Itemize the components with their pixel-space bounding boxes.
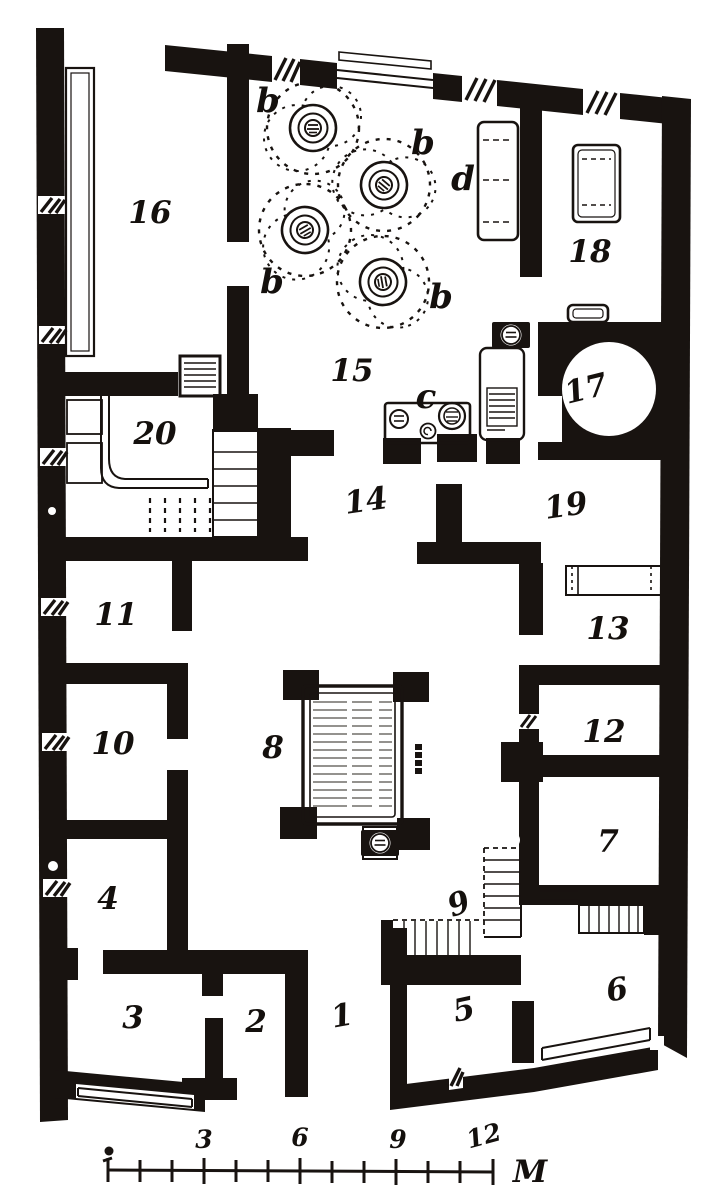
feature-d-structure: [478, 122, 518, 240]
letter-label-c: c: [416, 377, 437, 417]
scale-label-6: 6: [291, 1123, 308, 1152]
room-label-4: 4: [97, 881, 119, 917]
scale-zero-dot: [105, 1147, 114, 1156]
floor-plan-drawing: 1 2 3 4 5 6 7 8 9 10 11 12 13 14 15 16 1…: [0, 0, 723, 1200]
room-label-2: 2: [244, 1004, 267, 1040]
room-18-basin: [568, 305, 608, 322]
floor-plan-page: 1 2 3 4 5 6 7 8 9 10 11 12 13 14 15 16 1…: [0, 0, 723, 1200]
hatched-opening-icon: [41, 598, 69, 616]
cistern-head-icon: [492, 322, 530, 348]
tree-icon: [329, 226, 436, 338]
drain-dashes: [150, 498, 210, 532]
scale-label-9: 9: [389, 1125, 406, 1154]
scale-label-3: 3: [195, 1125, 212, 1154]
room-label-7: 7: [597, 824, 619, 860]
letter-label-d: d: [451, 159, 475, 199]
staircase-room-20: [213, 430, 258, 537]
room-label-11: 11: [94, 597, 137, 633]
hatched-opening-icon: [40, 448, 68, 466]
puteal-icon: [361, 830, 399, 856]
scale-unit-label: M: [512, 1154, 549, 1190]
hatched-opening-icon: [39, 326, 67, 344]
room-label-3: 3: [122, 1000, 144, 1036]
letter-label-b: b: [260, 262, 284, 302]
room-label-8: 8: [261, 730, 284, 766]
letter-label-b: b: [256, 81, 280, 121]
impluvium: [303, 686, 402, 824]
tree-icon: [240, 166, 370, 294]
room-label-1: 1: [328, 996, 356, 1035]
hatched-opening-icon: [43, 879, 71, 897]
round-room-17: [538, 322, 683, 460]
hatched-opening-icon: [583, 89, 620, 119]
hatched-opening-icon: [42, 733, 70, 751]
room-label-9: 9: [443, 883, 476, 924]
scale-label-12: 12: [463, 1117, 504, 1154]
outer-wall-right: [658, 96, 691, 1058]
floor-grate: [180, 356, 220, 396]
room-label-5: 5: [450, 990, 479, 1030]
room-label-13: 13: [586, 611, 629, 647]
room-18-bed: [573, 145, 620, 222]
room-label-19: 19: [542, 485, 590, 527]
room-label-6: 6: [603, 970, 631, 1009]
hatched-opening-icon: [462, 76, 497, 106]
room-label-16: 16: [128, 195, 171, 231]
garden-entrance-threshold: [337, 52, 433, 88]
letter-label-b: b: [411, 123, 435, 163]
room-label-12: 12: [582, 714, 625, 750]
staircase-9-upper: [484, 848, 521, 937]
room-label-10: 10: [91, 726, 135, 762]
atrium-dotted-strip: [415, 744, 422, 774]
room-label-14: 14: [342, 480, 390, 522]
cistern-structure: [480, 322, 530, 440]
scale-bar: 3 6 9 12 M: [103, 1117, 549, 1190]
letter-label-b: b: [429, 277, 453, 317]
room-label-15: 15: [330, 353, 373, 389]
hatched-opening-icon: [449, 1064, 463, 1090]
room-20-channel: [67, 394, 210, 532]
hatched-opening-icon: [519, 714, 539, 729]
room-13-bed: [566, 566, 661, 595]
room-label-20: 20: [132, 416, 177, 452]
hatched-opening-icon: [38, 196, 66, 214]
room-label-18: 18: [568, 234, 611, 270]
room-16-trough: [66, 68, 94, 356]
